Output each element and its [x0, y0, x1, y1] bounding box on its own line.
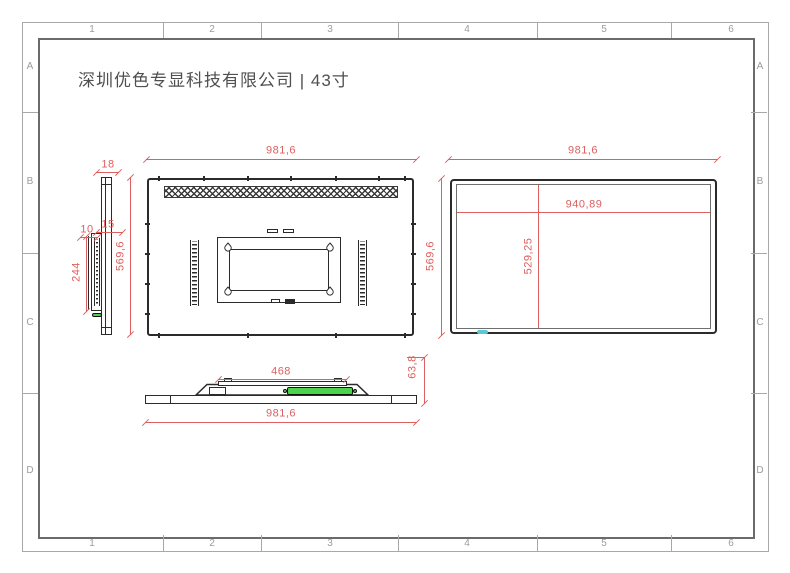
rear-slot — [271, 299, 280, 303]
grid-tick — [537, 22, 538, 38]
grid-row-label: B — [757, 177, 764, 187]
bottom-view-panel — [145, 395, 417, 404]
grid-tick — [261, 535, 262, 551]
screw-tick — [145, 253, 150, 255]
dim-line-244 — [86, 236, 87, 312]
grid-tick — [751, 393, 767, 394]
grid-tick — [163, 22, 164, 38]
side-view-cap-line — [102, 184, 111, 185]
screw-tick — [145, 313, 150, 315]
dim-line-mid-height — [441, 178, 442, 336]
screw-tick — [145, 283, 150, 285]
screw-tick — [411, 253, 416, 255]
dim-label-bottom-width: 981,6 — [266, 409, 296, 420]
grid-col-label: 4 — [464, 25, 470, 35]
grid-col-label: 6 — [728, 539, 734, 549]
side-view-port-strip — [92, 313, 102, 317]
dim-label-rear-width: 981,6 — [266, 146, 296, 157]
vesa-keyhole-icon — [324, 242, 336, 254]
screw-tick — [203, 176, 205, 181]
grid-row-label: D — [26, 466, 33, 476]
screw-tick — [335, 333, 337, 338]
grid-tick — [671, 22, 672, 38]
dim-label-depth: 63,8 — [408, 355, 419, 378]
vesa-mount-inner — [229, 249, 329, 291]
grid-col-label: 5 — [601, 539, 607, 549]
screw-tick — [247, 333, 249, 338]
screw-tick — [404, 333, 406, 338]
rear-vent-strip-right — [358, 240, 367, 306]
grid-tick — [537, 535, 538, 551]
grid-tick — [398, 22, 399, 38]
rear-slot-filled — [285, 299, 295, 304]
grid-tick — [751, 253, 767, 254]
grid-col-label: 2 — [209, 539, 215, 549]
active-height-line — [538, 185, 539, 328]
grid-row-label: A — [27, 62, 34, 72]
dim-label-lip: 15 — [101, 220, 114, 231]
dim-label-thickness: 18 — [101, 160, 114, 171]
dim-line-front-width — [448, 159, 718, 160]
side-view-panel — [101, 177, 112, 335]
grid-tick — [22, 112, 38, 113]
grid-tick — [22, 253, 38, 254]
side-view-panel-line — [105, 178, 106, 334]
bottom-panel-divider — [391, 396, 392, 403]
grid-tick — [671, 535, 672, 551]
grid-row-label: C — [26, 318, 33, 328]
vesa-keyhole-icon — [222, 286, 234, 298]
side-view-vent-slots — [94, 238, 100, 306]
grid-col-label: 1 — [89, 25, 95, 35]
screw-tick — [378, 176, 380, 181]
screw-tick — [158, 176, 160, 181]
rear-slot — [283, 229, 294, 233]
vesa-keyhole-icon — [222, 242, 234, 254]
active-width-line — [457, 212, 710, 213]
drawing-canvas: 1 2 3 4 5 6 1 2 3 4 5 6 A B C D A B C D … — [0, 0, 790, 573]
screw-tick — [411, 283, 416, 285]
dim-label-box-height: 244 — [72, 262, 83, 282]
dim-line-mount-width — [218, 379, 347, 380]
dim-label-mount-width: 468 — [271, 367, 291, 378]
screw-tick — [411, 313, 416, 315]
screw-tick — [335, 176, 337, 181]
dim-line-rear-width — [146, 159, 417, 160]
grid-col-label: 2 — [209, 25, 215, 35]
grid-tick — [398, 535, 399, 551]
grid-row-label: B — [27, 177, 34, 187]
bottom-port-bar-nub — [283, 389, 287, 393]
grid-col-label: 5 — [601, 25, 607, 35]
grid-tick — [751, 112, 767, 113]
bottom-panel-divider — [170, 396, 171, 403]
bottom-port-bar — [287, 387, 353, 395]
dim-line-side-height — [130, 177, 131, 335]
grid-tick — [261, 22, 262, 38]
dim-label-active-width: 940,89 — [566, 200, 603, 211]
screw-tick — [290, 176, 292, 181]
bottom-mount-plate — [218, 381, 347, 386]
grid-col-label: 4 — [464, 539, 470, 549]
screw-tick — [404, 176, 406, 181]
grid-col-label: 1 — [89, 539, 95, 549]
drawing-title: 深圳优色专显科技有限公司 | 43寸 — [78, 66, 350, 91]
dim-label-mid-height: 569,6 — [426, 241, 437, 271]
screw-tick — [145, 223, 150, 225]
grid-col-label: 3 — [327, 539, 333, 549]
grid-row-label: A — [757, 62, 764, 72]
grid-col-label: 3 — [327, 25, 333, 35]
side-view-bracket-line — [88, 236, 89, 310]
rear-vent-mesh — [164, 186, 398, 198]
dim-line-depth — [424, 357, 425, 404]
ir-sensor-window — [477, 330, 488, 334]
rear-slot — [267, 229, 278, 233]
rear-vent-strip-left — [190, 240, 199, 306]
screw-tick — [158, 333, 160, 338]
dim-line-bottom-width — [145, 422, 417, 423]
grid-row-label: C — [756, 318, 763, 328]
bottom-connector-box — [209, 387, 226, 395]
dim-label-front-width: 981,6 — [568, 146, 598, 157]
dim-line-18 — [96, 172, 119, 173]
dim-label-active-height: 529,25 — [524, 238, 535, 275]
grid-tick — [22, 393, 38, 394]
vesa-keyhole-icon — [324, 286, 336, 298]
grid-row-label: D — [756, 466, 763, 476]
bottom-port-bar-nub — [353, 389, 357, 393]
screw-tick — [411, 223, 416, 225]
grid-col-label: 6 — [728, 25, 734, 35]
screw-tick — [247, 176, 249, 181]
grid-tick — [163, 535, 164, 551]
side-view-cap-line — [102, 327, 111, 328]
dim-label-side-height: 569,6 — [116, 241, 127, 271]
